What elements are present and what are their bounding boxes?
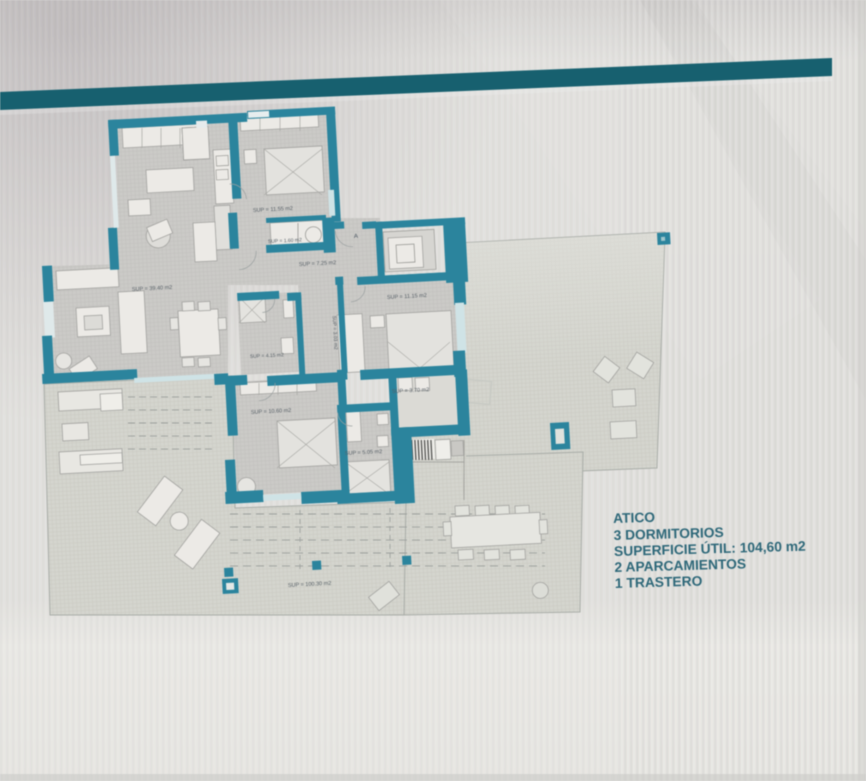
svg-text:ATICO: ATICO bbox=[613, 510, 656, 526]
svg-text:A: A bbox=[354, 234, 358, 240]
svg-text:1 TRASTERO: 1 TRASTERO bbox=[615, 574, 703, 591]
svg-text:3 DORMITORIOS: 3 DORMITORIOS bbox=[613, 525, 724, 543]
